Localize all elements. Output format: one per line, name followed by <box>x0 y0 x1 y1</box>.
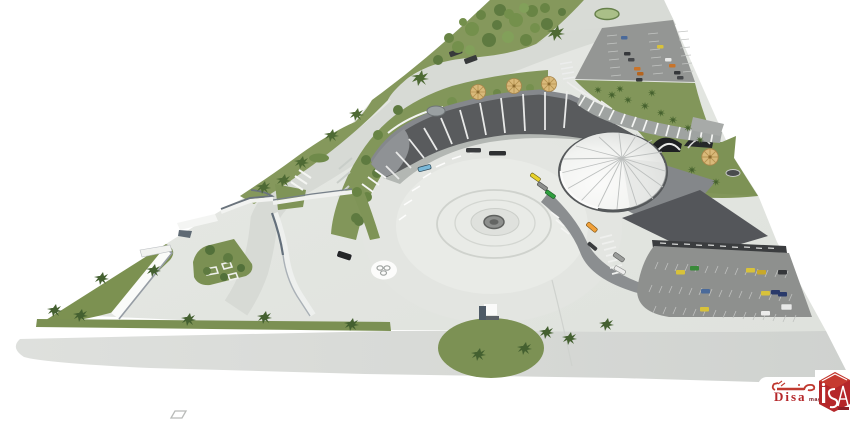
svg-text:Disa: Disa <box>774 389 807 404</box>
